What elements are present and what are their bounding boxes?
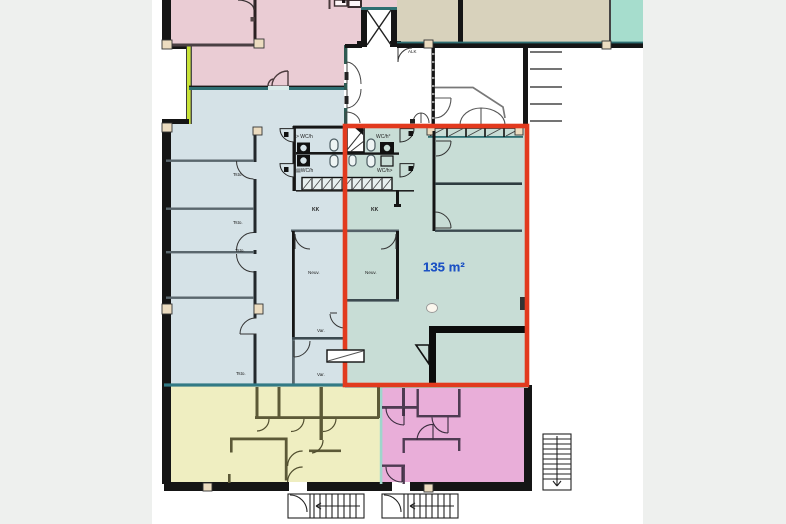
svg-text:135 m²: 135 m² xyxy=(423,260,465,275)
svg-text:Tsto.: Tsto. xyxy=(236,371,246,376)
svg-text:Neuv.: Neuv. xyxy=(365,270,377,275)
svg-text:Neuv.: Neuv. xyxy=(308,270,320,275)
svg-text:Tsto.: Tsto. xyxy=(233,172,243,177)
svg-text:KK: KK xyxy=(371,207,379,213)
svg-text:▤WC/h: ▤WC/h xyxy=(296,168,313,174)
svg-text:> WC/h: > WC/h xyxy=(296,134,313,140)
svg-text:WC/h>: WC/h> xyxy=(377,168,393,174)
svg-text:Tsto.: Tsto. xyxy=(233,220,243,225)
svg-text:WC/h°: WC/h° xyxy=(376,134,391,140)
svg-text:Var.: Var. xyxy=(317,328,325,333)
svg-text:Tsto.: Tsto. xyxy=(235,248,245,253)
svg-text:KK: KK xyxy=(312,207,320,213)
svg-text:Var.: Var. xyxy=(317,372,325,377)
svg-text:ALK: ALK xyxy=(408,49,417,54)
